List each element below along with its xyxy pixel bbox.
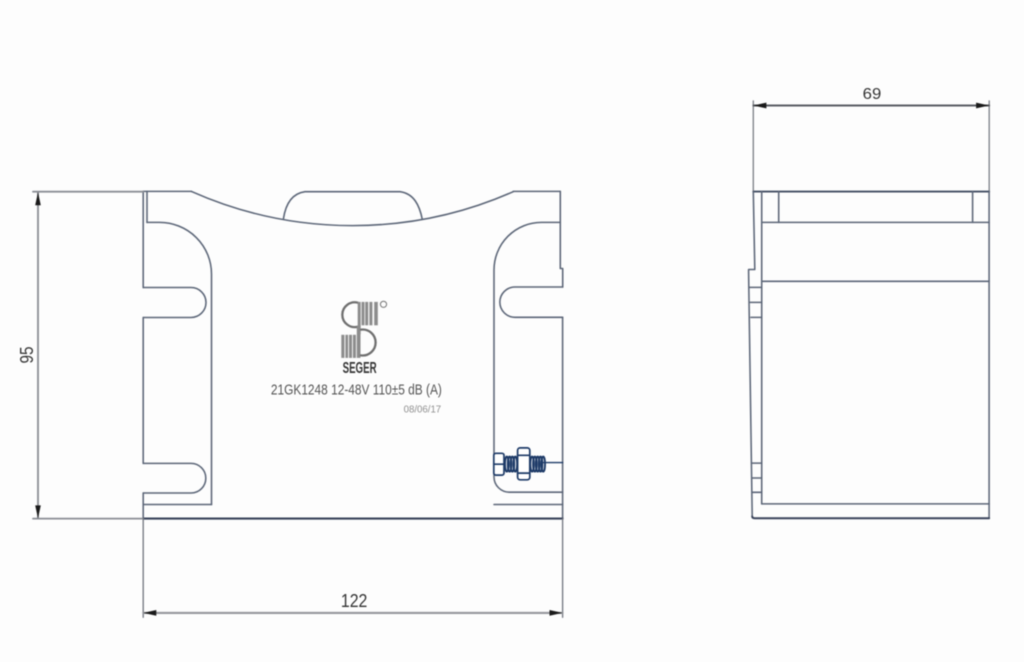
svg-text:122: 122 xyxy=(341,590,368,611)
svg-text:69: 69 xyxy=(863,86,882,103)
svg-text:95: 95 xyxy=(17,347,37,364)
svg-text:08/06/17: 08/06/17 xyxy=(404,405,442,416)
svg-text:SEGER: SEGER xyxy=(343,360,377,377)
svg-text:21GK1248 12-48V 110±5 dB (A): 21GK1248 12-48V 110±5 dB (A) xyxy=(271,382,442,398)
